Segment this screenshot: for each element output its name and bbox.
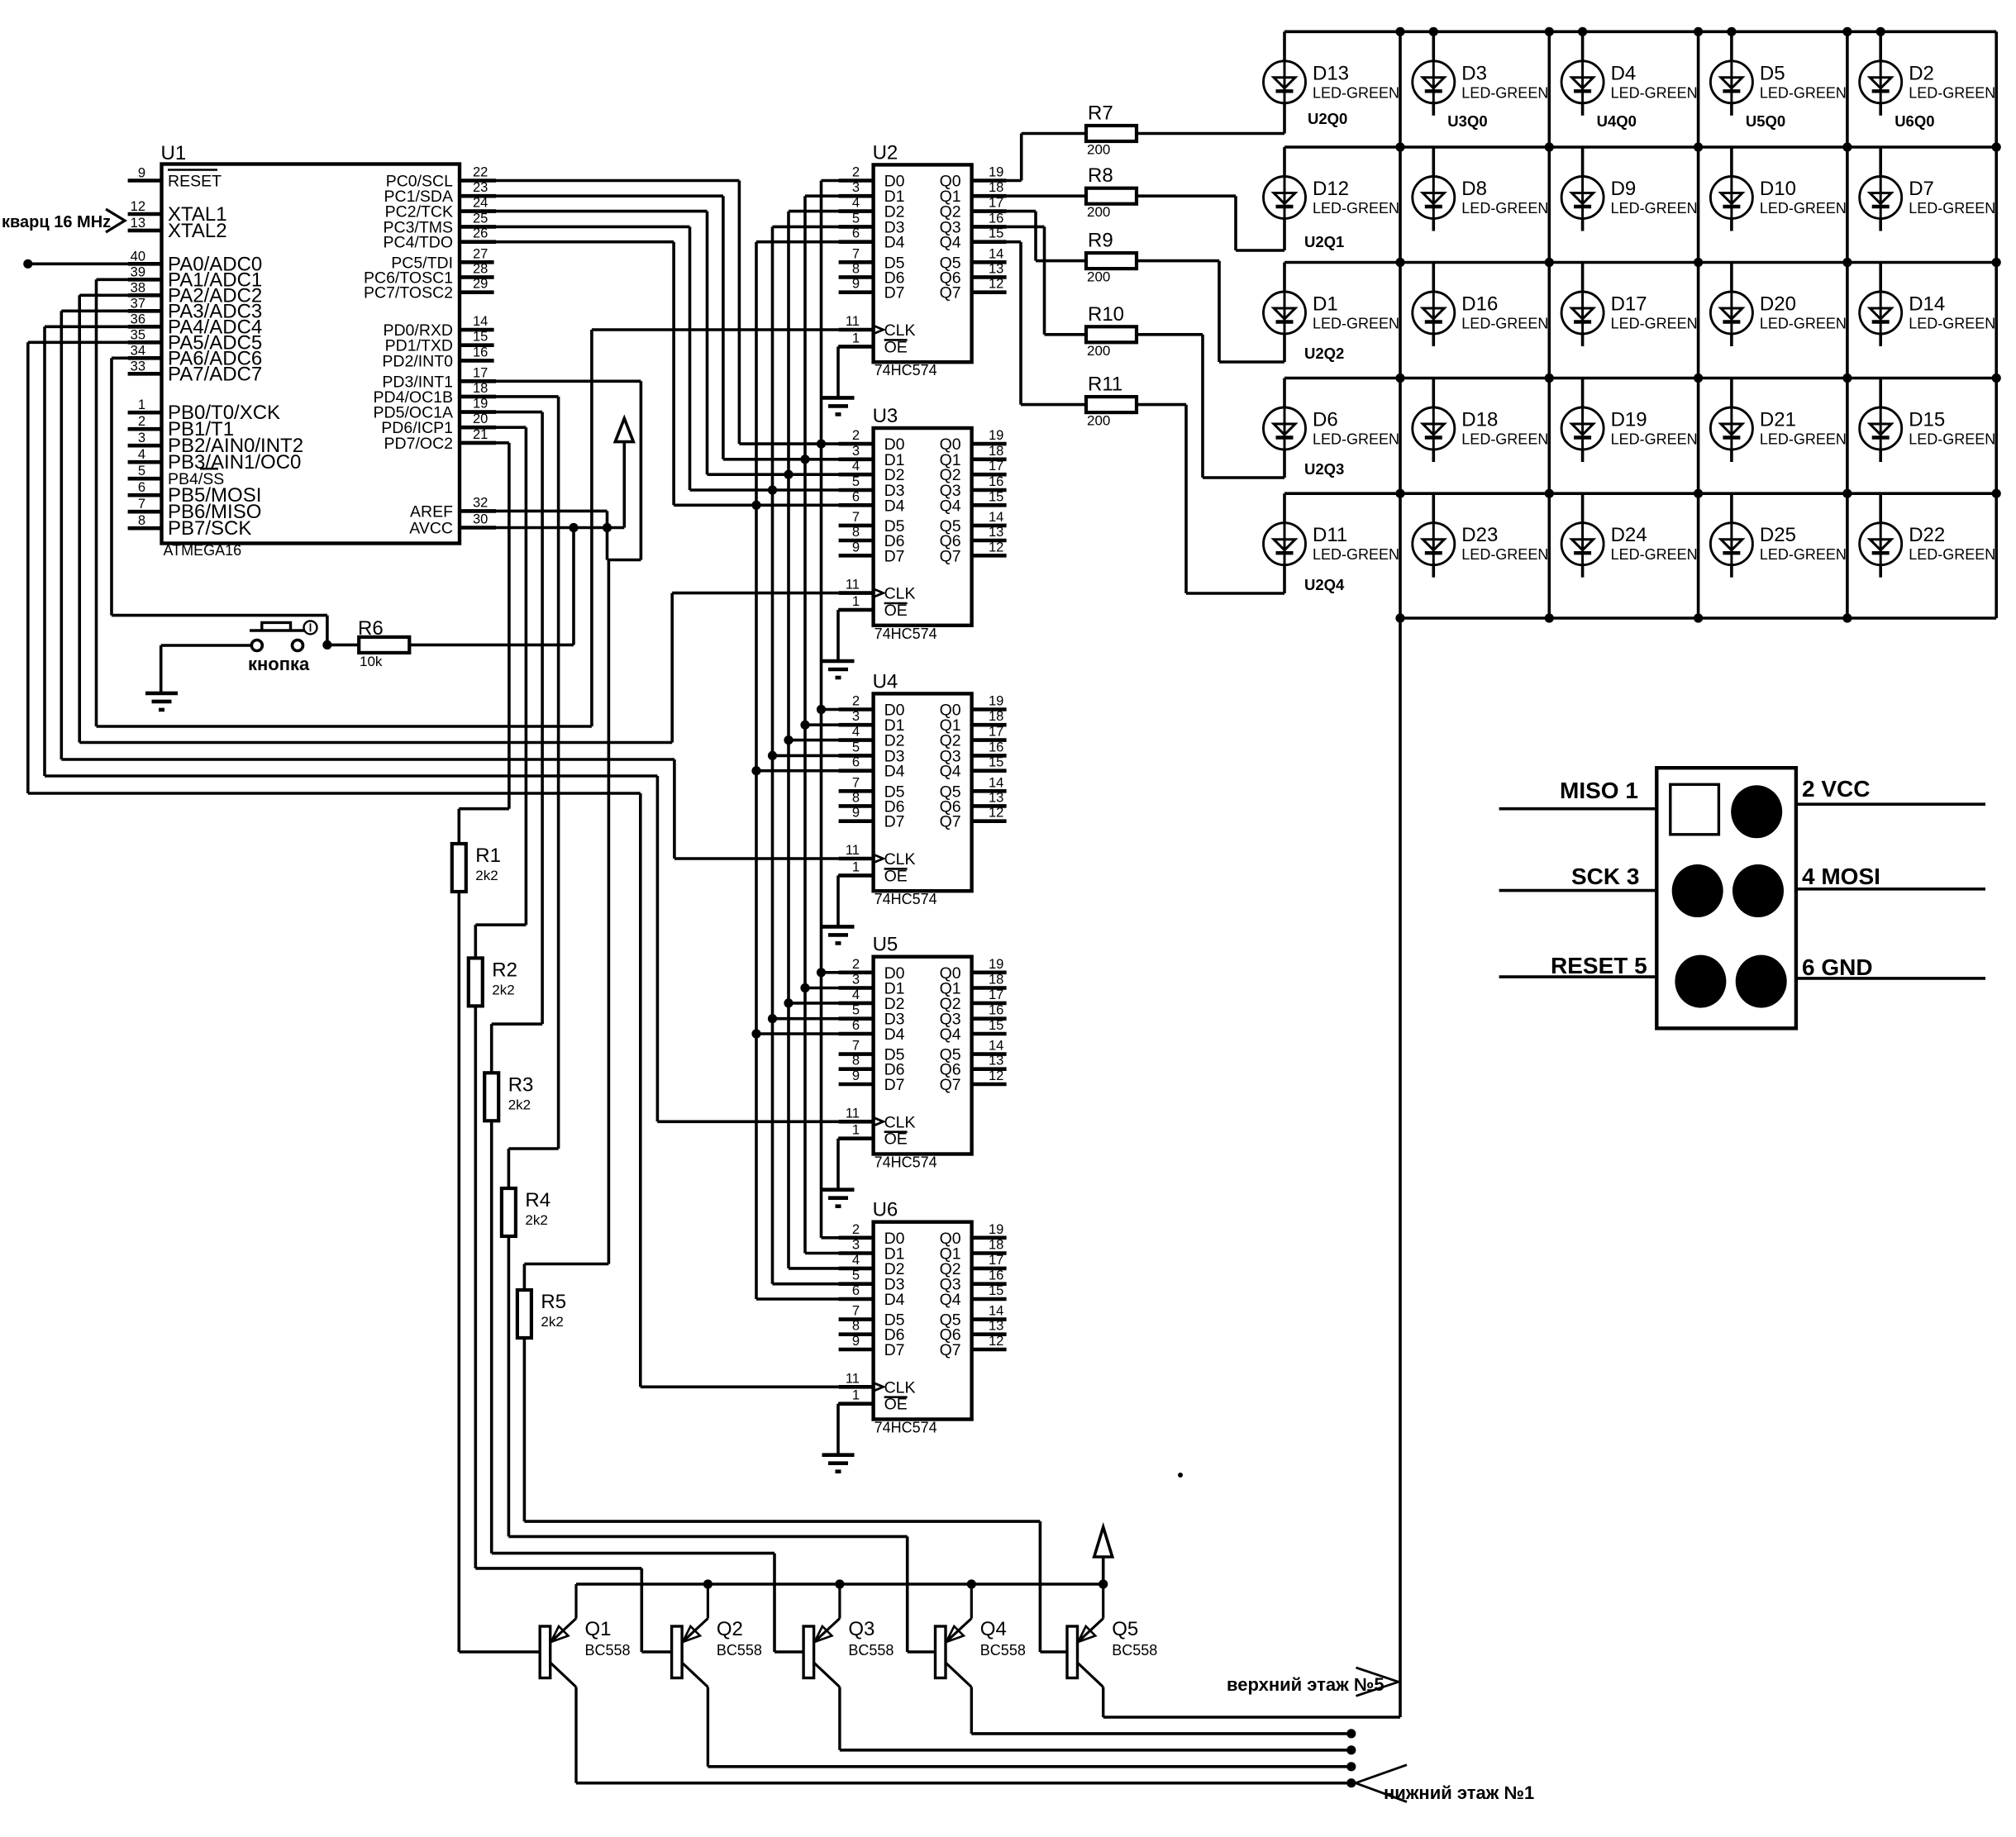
svg-text:R1: R1 <box>475 845 501 867</box>
svg-text:5: 5 <box>852 1268 860 1283</box>
svg-text:LED-GREEN: LED-GREEN <box>1313 84 1399 101</box>
svg-text:R10: R10 <box>1088 303 1124 326</box>
svg-text:38: 38 <box>131 280 145 295</box>
svg-text:Q4: Q4 <box>940 234 961 252</box>
svg-text:74HC574: 74HC574 <box>875 891 937 907</box>
svg-text:1: 1 <box>852 594 860 609</box>
svg-text:24: 24 <box>473 196 488 211</box>
svg-text:BC558: BC558 <box>585 1642 631 1659</box>
svg-text:D11: D11 <box>1313 524 1347 546</box>
svg-text:11: 11 <box>846 578 860 593</box>
svg-text:U3: U3 <box>873 405 898 427</box>
svg-text:9: 9 <box>852 540 860 554</box>
svg-text:9: 9 <box>852 806 860 821</box>
svg-text:BC558: BC558 <box>717 1642 762 1659</box>
svg-text:16: 16 <box>989 211 1003 226</box>
svg-text:D7: D7 <box>1909 178 1934 200</box>
svg-text:D2: D2 <box>1909 62 1934 84</box>
svg-text:8: 8 <box>138 513 145 528</box>
svg-text:OE: OE <box>884 1396 908 1414</box>
svg-text:8: 8 <box>852 1054 860 1068</box>
svg-text:OE: OE <box>884 867 908 885</box>
svg-text:D13: D13 <box>1313 62 1349 84</box>
svg-text:18: 18 <box>989 973 1003 988</box>
svg-text:D10: D10 <box>1760 178 1796 200</box>
svg-text:D6: D6 <box>1313 409 1338 431</box>
svg-text:15: 15 <box>989 226 1003 241</box>
svg-text:4: 4 <box>852 459 860 474</box>
svg-text:D17: D17 <box>1611 293 1647 316</box>
svg-text:7: 7 <box>852 246 860 261</box>
svg-text:28: 28 <box>473 261 488 276</box>
svg-text:LED-GREEN: LED-GREEN <box>1611 431 1698 448</box>
svg-text:Q7: Q7 <box>940 547 961 565</box>
svg-text:LED-GREEN: LED-GREEN <box>1611 84 1698 101</box>
svg-text:26: 26 <box>473 226 488 241</box>
svg-text:19: 19 <box>989 165 1003 180</box>
svg-text:LED-GREEN: LED-GREEN <box>1760 431 1847 448</box>
svg-text:U2: U2 <box>873 141 898 164</box>
svg-text:D25: D25 <box>1760 524 1796 546</box>
svg-text:14: 14 <box>989 510 1003 525</box>
svg-text:13: 13 <box>989 261 1003 276</box>
svg-text:18: 18 <box>989 1238 1003 1253</box>
svg-text:LED-GREEN: LED-GREEN <box>1461 546 1548 563</box>
svg-text:LED-GREEN: LED-GREEN <box>1760 546 1847 563</box>
svg-text:18: 18 <box>473 381 488 396</box>
svg-text:LED-GREEN: LED-GREEN <box>1611 200 1698 217</box>
svg-text:2: 2 <box>852 694 860 709</box>
svg-text:4: 4 <box>138 447 145 462</box>
svg-text:12: 12 <box>989 1068 1003 1083</box>
svg-text:U2Q4: U2Q4 <box>1304 576 1345 593</box>
svg-text:2: 2 <box>852 1222 860 1237</box>
svg-text:PC4/TDO: PC4/TDO <box>383 234 453 252</box>
svg-text:3: 3 <box>852 444 860 459</box>
svg-text:LED-GREEN: LED-GREEN <box>1760 84 1847 101</box>
svg-text:D18: D18 <box>1461 409 1498 431</box>
svg-text:17: 17 <box>989 725 1003 740</box>
svg-text:LED-GREEN: LED-GREEN <box>1313 546 1399 563</box>
svg-text:15: 15 <box>989 1283 1003 1298</box>
svg-text:кнопка: кнопка <box>248 654 310 674</box>
svg-text:36: 36 <box>131 312 145 326</box>
svg-text:13: 13 <box>989 1319 1003 1334</box>
svg-text:PD2/INT0: PD2/INT0 <box>382 352 453 370</box>
svg-text:U4: U4 <box>873 670 898 692</box>
svg-text:OE: OE <box>884 1130 908 1149</box>
svg-text:12: 12 <box>989 540 1003 554</box>
svg-text:200: 200 <box>1087 413 1110 429</box>
svg-text:D22: D22 <box>1909 524 1945 546</box>
svg-text:D12: D12 <box>1313 178 1349 200</box>
svg-text:3: 3 <box>138 431 145 445</box>
svg-text:30: 30 <box>473 512 488 527</box>
svg-text:D4: D4 <box>1611 62 1637 84</box>
svg-text:74HC574: 74HC574 <box>875 1420 937 1436</box>
svg-text:D21: D21 <box>1760 409 1796 431</box>
svg-text:9: 9 <box>852 1334 860 1349</box>
svg-text:D7: D7 <box>884 1076 905 1094</box>
svg-text:Q5: Q5 <box>1112 1618 1138 1640</box>
svg-text:37: 37 <box>131 296 145 311</box>
svg-text:SCK 3: SCK 3 <box>1571 864 1639 889</box>
svg-text:5: 5 <box>852 740 860 754</box>
svg-text:14: 14 <box>989 246 1003 261</box>
svg-text:D23: D23 <box>1461 524 1498 546</box>
svg-text:2k2: 2k2 <box>508 1097 531 1112</box>
svg-text:2: 2 <box>852 428 860 443</box>
svg-text:27: 27 <box>473 246 488 261</box>
svg-text:5: 5 <box>852 211 860 226</box>
svg-text:CLK: CLK <box>884 321 916 340</box>
svg-text:U4Q0: U4Q0 <box>1597 112 1637 130</box>
svg-text:XTAL2: XTAL2 <box>168 220 227 242</box>
svg-text:8: 8 <box>852 1319 860 1334</box>
svg-text:4: 4 <box>852 1253 860 1268</box>
svg-text:D4: D4 <box>884 763 905 781</box>
svg-text:9: 9 <box>852 1068 860 1083</box>
svg-text:6: 6 <box>852 755 860 770</box>
svg-text:D7: D7 <box>884 813 905 831</box>
svg-text:Q7: Q7 <box>940 813 961 831</box>
svg-text:AVCC: AVCC <box>409 520 453 538</box>
svg-text:4: 4 <box>852 988 860 1002</box>
svg-text:U2Q2: U2Q2 <box>1304 345 1344 362</box>
svg-text:2: 2 <box>852 165 860 180</box>
svg-text:R4: R4 <box>525 1189 550 1211</box>
svg-text:200: 200 <box>1087 343 1110 359</box>
svg-text:7: 7 <box>138 497 145 512</box>
svg-text:12: 12 <box>989 806 1003 821</box>
svg-text:17: 17 <box>989 196 1003 211</box>
svg-text:14: 14 <box>473 314 488 329</box>
svg-text:6 GND: 6 GND <box>1802 954 1873 980</box>
svg-text:17: 17 <box>989 459 1003 474</box>
svg-text:40: 40 <box>131 249 145 264</box>
svg-text:9: 9 <box>852 277 860 292</box>
svg-text:LED-GREEN: LED-GREEN <box>1611 546 1698 563</box>
svg-text:Q4: Q4 <box>940 497 961 515</box>
svg-text:18: 18 <box>989 180 1003 195</box>
svg-text:LED-GREEN: LED-GREEN <box>1313 316 1399 332</box>
svg-text:74HC574: 74HC574 <box>875 362 937 378</box>
svg-text:кварц 16 МHz: кварц 16 МHz <box>2 213 111 231</box>
svg-text:1: 1 <box>852 1123 860 1138</box>
svg-text:21: 21 <box>473 427 488 442</box>
svg-text:2k2: 2k2 <box>475 868 498 883</box>
svg-text:D8: D8 <box>1461 178 1487 200</box>
svg-text:6: 6 <box>852 226 860 241</box>
svg-text:R6: R6 <box>358 617 384 640</box>
svg-text:R7: R7 <box>1088 102 1113 125</box>
svg-text:19: 19 <box>989 428 1003 443</box>
svg-text:200: 200 <box>1087 142 1110 158</box>
svg-text:LED-GREEN: LED-GREEN <box>1909 546 1995 563</box>
svg-text:16: 16 <box>989 1268 1003 1283</box>
svg-text:D5: D5 <box>1760 62 1785 84</box>
svg-text:39: 39 <box>131 264 145 279</box>
svg-text:U3Q0: U3Q0 <box>1447 112 1487 130</box>
svg-text:1: 1 <box>852 1388 860 1403</box>
svg-text:CLK: CLK <box>884 850 916 869</box>
svg-text:13: 13 <box>131 216 145 231</box>
svg-text:17: 17 <box>989 988 1003 1002</box>
svg-text:7: 7 <box>852 1039 860 1054</box>
svg-text:LED-GREEN: LED-GREEN <box>1461 200 1548 217</box>
svg-text:15: 15 <box>473 330 488 345</box>
svg-text:R11: R11 <box>1088 374 1122 396</box>
svg-text:2k2: 2k2 <box>525 1212 547 1228</box>
svg-text:8: 8 <box>852 790 860 805</box>
svg-text:11: 11 <box>846 314 860 329</box>
svg-text:3: 3 <box>852 180 860 195</box>
svg-text:Q4: Q4 <box>940 1291 961 1309</box>
svg-text:U2Q3: U2Q3 <box>1304 460 1344 478</box>
svg-text:D4: D4 <box>884 1026 905 1044</box>
svg-text:BC558: BC558 <box>848 1642 894 1659</box>
svg-text:верхний этаж №5: верхний этаж №5 <box>1227 1674 1385 1695</box>
svg-text:3: 3 <box>852 973 860 988</box>
svg-text:29: 29 <box>473 277 488 292</box>
svg-text:D16: D16 <box>1461 293 1498 316</box>
svg-text:14: 14 <box>989 1039 1003 1054</box>
svg-text:16: 16 <box>989 474 1003 489</box>
svg-text:D4: D4 <box>884 1291 905 1309</box>
svg-text:PA7/ADC7: PA7/ADC7 <box>168 363 262 385</box>
svg-text:D4: D4 <box>884 497 905 515</box>
svg-text:PD7/OC2: PD7/OC2 <box>384 435 453 453</box>
svg-text:PB7/SCK: PB7/SCK <box>168 517 251 540</box>
svg-text:U2Q0: U2Q0 <box>1308 110 1347 127</box>
svg-text:200: 200 <box>1087 269 1110 285</box>
svg-text:Q2: Q2 <box>717 1618 743 1640</box>
svg-text:5: 5 <box>852 1003 860 1018</box>
svg-text:6: 6 <box>852 1283 860 1298</box>
svg-text:MISO 1: MISO 1 <box>1560 778 1638 803</box>
svg-text:CLK: CLK <box>884 1378 916 1397</box>
svg-text:D9: D9 <box>1611 178 1637 200</box>
svg-text:2: 2 <box>852 957 860 972</box>
svg-text:9: 9 <box>138 166 145 181</box>
svg-text:3: 3 <box>852 1238 860 1253</box>
svg-text:34: 34 <box>131 343 145 358</box>
svg-text:17: 17 <box>989 1253 1003 1268</box>
svg-text:23: 23 <box>473 180 488 195</box>
svg-text:LED-GREEN: LED-GREEN <box>1461 84 1548 101</box>
svg-text:19: 19 <box>989 957 1003 972</box>
svg-text:LED-GREEN: LED-GREEN <box>1909 84 1995 101</box>
svg-text:U6Q0: U6Q0 <box>1894 112 1934 130</box>
svg-text:PC7/TOSC2: PC7/TOSC2 <box>364 284 453 302</box>
svg-text:Q1: Q1 <box>585 1618 612 1640</box>
svg-text:D24: D24 <box>1611 524 1647 546</box>
svg-text:12: 12 <box>989 1334 1003 1349</box>
svg-text:8: 8 <box>852 525 860 540</box>
svg-text:D3: D3 <box>1461 62 1487 84</box>
svg-text:1: 1 <box>138 397 145 412</box>
svg-text:16: 16 <box>989 740 1003 754</box>
svg-text:200: 200 <box>1087 204 1110 220</box>
svg-text:74HC574: 74HC574 <box>875 1154 937 1171</box>
svg-text:LED-GREEN: LED-GREEN <box>1461 316 1548 332</box>
svg-text:19: 19 <box>989 694 1003 709</box>
svg-text:LED-GREEN: LED-GREEN <box>1760 316 1847 332</box>
svg-text:19: 19 <box>473 397 488 412</box>
svg-text:D7: D7 <box>884 547 905 565</box>
svg-text:D1: D1 <box>1313 293 1338 316</box>
svg-text:R9: R9 <box>1088 230 1113 252</box>
svg-text:14: 14 <box>989 775 1003 790</box>
svg-text:CLK: CLK <box>884 585 916 603</box>
svg-text:11: 11 <box>846 1106 860 1121</box>
svg-text:LED-GREEN: LED-GREEN <box>1313 431 1399 448</box>
svg-text:6: 6 <box>138 480 145 495</box>
svg-text:U2Q1: U2Q1 <box>1304 233 1344 250</box>
svg-text:15: 15 <box>989 1018 1003 1033</box>
svg-text:12: 12 <box>989 277 1003 292</box>
svg-text:5: 5 <box>138 464 145 478</box>
svg-text:6: 6 <box>852 1018 860 1033</box>
svg-text:U5Q0: U5Q0 <box>1746 112 1785 130</box>
svg-text:10k: 10k <box>360 654 383 669</box>
svg-text:U1: U1 <box>161 142 187 164</box>
svg-text:LED-GREEN: LED-GREEN <box>1313 200 1399 217</box>
svg-text:R8: R8 <box>1088 164 1113 187</box>
svg-text:AREF: AREF <box>410 502 453 521</box>
svg-text:7: 7 <box>852 775 860 790</box>
svg-text:18: 18 <box>989 444 1003 459</box>
svg-text:14: 14 <box>989 1304 1003 1319</box>
svg-text:LED-GREEN: LED-GREEN <box>1909 431 1995 448</box>
svg-text:CLK: CLK <box>884 1113 916 1131</box>
svg-text:5: 5 <box>852 474 860 489</box>
svg-text:16: 16 <box>989 1003 1003 1018</box>
svg-text:LED-GREEN: LED-GREEN <box>1760 200 1847 217</box>
svg-text:6: 6 <box>852 489 860 504</box>
svg-text:4: 4 <box>852 196 860 211</box>
svg-text:19: 19 <box>989 1222 1003 1237</box>
svg-text:LED-GREEN: LED-GREEN <box>1461 431 1548 448</box>
svg-text:4 MOSI: 4 MOSI <box>1802 864 1880 889</box>
svg-text:2: 2 <box>138 414 145 429</box>
svg-text:33: 33 <box>131 359 145 374</box>
svg-text:18: 18 <box>989 709 1003 724</box>
svg-text:7: 7 <box>852 510 860 525</box>
svg-text:Q7: Q7 <box>940 284 961 302</box>
svg-text:BC558: BC558 <box>1112 1642 1157 1659</box>
svg-text:2k2: 2k2 <box>492 982 514 997</box>
svg-text:R2: R2 <box>492 959 517 981</box>
svg-text:D19: D19 <box>1611 409 1647 431</box>
svg-text:15: 15 <box>989 755 1003 770</box>
svg-text:Q3: Q3 <box>848 1618 875 1640</box>
svg-text:7: 7 <box>852 1304 860 1319</box>
svg-text:13: 13 <box>989 525 1003 540</box>
svg-text:U5: U5 <box>873 934 898 956</box>
svg-text:13: 13 <box>989 790 1003 805</box>
svg-text:Q4: Q4 <box>980 1618 1007 1640</box>
svg-text:Q4: Q4 <box>940 763 961 781</box>
svg-text:2 VCC: 2 VCC <box>1802 776 1870 802</box>
svg-text:32: 32 <box>473 495 488 510</box>
svg-text:нижний этаж №1: нижний этаж №1 <box>1384 1782 1534 1803</box>
svg-text:15: 15 <box>989 489 1003 504</box>
svg-text:Q4: Q4 <box>940 1026 961 1044</box>
svg-text:U6: U6 <box>873 1199 898 1221</box>
svg-text:D4: D4 <box>884 234 905 252</box>
svg-text:ATMEGA16: ATMEGA16 <box>164 542 242 559</box>
svg-text:Q7: Q7 <box>940 1076 961 1094</box>
svg-text:11: 11 <box>846 843 860 858</box>
svg-text:20: 20 <box>473 412 488 426</box>
svg-text:17: 17 <box>473 365 488 380</box>
svg-text:12: 12 <box>131 199 145 214</box>
svg-text:8: 8 <box>852 261 860 276</box>
svg-text:D7: D7 <box>884 284 905 302</box>
svg-text:RESET 5: RESET 5 <box>1551 953 1647 978</box>
svg-text:LED-GREEN: LED-GREEN <box>1909 316 1995 332</box>
svg-text:35: 35 <box>131 327 145 342</box>
svg-text:R5: R5 <box>541 1291 566 1313</box>
svg-text:1: 1 <box>852 859 860 874</box>
svg-text:BC558: BC558 <box>980 1642 1026 1659</box>
svg-text:13: 13 <box>989 1054 1003 1068</box>
svg-text:16: 16 <box>473 345 488 359</box>
svg-text:D7: D7 <box>884 1341 905 1359</box>
svg-text:D15: D15 <box>1909 409 1945 431</box>
svg-text:2k2: 2k2 <box>541 1314 563 1330</box>
svg-text:11: 11 <box>846 1371 860 1386</box>
svg-text:LED-GREEN: LED-GREEN <box>1909 200 1995 217</box>
svg-text:D20: D20 <box>1760 293 1796 316</box>
svg-text:RESET: RESET <box>168 173 222 191</box>
svg-text:22: 22 <box>473 165 488 180</box>
svg-text:4: 4 <box>852 725 860 740</box>
svg-text:Q7: Q7 <box>940 1341 961 1359</box>
svg-text:D14: D14 <box>1909 293 1945 316</box>
svg-text:1: 1 <box>852 331 860 345</box>
svg-text:LED-GREEN: LED-GREEN <box>1611 316 1698 332</box>
svg-text:R3: R3 <box>508 1073 534 1096</box>
svg-text:3: 3 <box>852 709 860 724</box>
svg-text:74HC574: 74HC574 <box>875 626 937 642</box>
svg-text:25: 25 <box>473 211 488 226</box>
